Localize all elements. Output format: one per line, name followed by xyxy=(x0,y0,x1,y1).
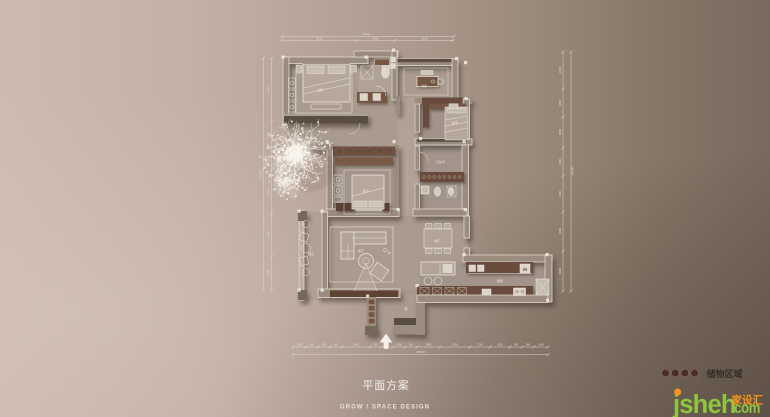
svg-text:2060: 2060 xyxy=(452,344,458,347)
svg-text:16070: 16070 xyxy=(416,350,425,354)
svg-text:900: 900 xyxy=(334,344,339,347)
svg-text:940: 940 xyxy=(514,344,519,347)
svg-text:1900: 1900 xyxy=(558,158,562,165)
svg-text:3090: 3090 xyxy=(267,188,271,195)
svg-text:2900: 2900 xyxy=(267,231,271,238)
svg-text:900: 900 xyxy=(526,344,531,347)
svg-text:15170: 15170 xyxy=(259,169,263,178)
svg-text:1980: 1980 xyxy=(426,344,432,347)
svg-text:16430: 16430 xyxy=(571,166,575,175)
svg-text:1500: 1500 xyxy=(497,344,503,347)
svg-text:储物区域: 储物区域 xyxy=(707,368,743,379)
svg-text:2400: 2400 xyxy=(558,190,562,197)
svg-text:jsheh: jsheh xyxy=(672,391,736,417)
svg-text:卫生间: 卫生间 xyxy=(435,159,444,164)
svg-text:GROW / SPACE DESIGN: GROW / SPACE DESIGN xyxy=(340,405,430,411)
svg-text:900: 900 xyxy=(310,344,315,347)
svg-text:餐厅: 餐厅 xyxy=(434,238,440,243)
svg-text:15130: 15130 xyxy=(362,32,370,36)
svg-text:阳台: 阳台 xyxy=(308,251,314,256)
svg-text:3630: 3630 xyxy=(316,37,323,41)
svg-text:2000: 2000 xyxy=(558,128,562,135)
svg-text:M: M xyxy=(523,267,527,272)
svg-text:厨房: 厨房 xyxy=(497,278,503,283)
svg-text:1060: 1060 xyxy=(396,344,402,347)
svg-text:卧室: 卧室 xyxy=(452,120,458,125)
svg-text:1800: 1800 xyxy=(558,99,562,106)
svg-text:2060: 2060 xyxy=(558,66,562,73)
svg-text:迎: 迎 xyxy=(404,306,408,311)
svg-text:2060: 2060 xyxy=(372,37,379,41)
svg-text:3630: 3630 xyxy=(421,37,428,41)
svg-text:1740: 1740 xyxy=(477,344,483,347)
svg-text:2400: 2400 xyxy=(538,344,544,347)
svg-text:卧室: 卧室 xyxy=(363,188,369,193)
svg-text:1060: 1060 xyxy=(297,344,303,347)
svg-text:.com: .com xyxy=(731,400,760,417)
svg-text:2900: 2900 xyxy=(558,267,562,274)
svg-text:书房: 书房 xyxy=(421,83,427,88)
svg-text:2600: 2600 xyxy=(558,227,562,234)
svg-text:卫: 卫 xyxy=(382,67,385,71)
svg-text:主卧: 主卧 xyxy=(317,87,323,92)
svg-text:平面方案: 平面方案 xyxy=(362,378,409,392)
svg-text:760: 760 xyxy=(373,344,378,347)
svg-text:2440: 2440 xyxy=(353,344,359,347)
svg-text:900: 900 xyxy=(409,344,414,347)
svg-text:900: 900 xyxy=(322,344,327,347)
svg-text:4790: 4790 xyxy=(267,86,271,93)
svg-text:▪: ▪ xyxy=(374,184,375,188)
svg-text:客厅: 客厅 xyxy=(358,248,364,253)
svg-text:2400: 2400 xyxy=(267,269,271,276)
